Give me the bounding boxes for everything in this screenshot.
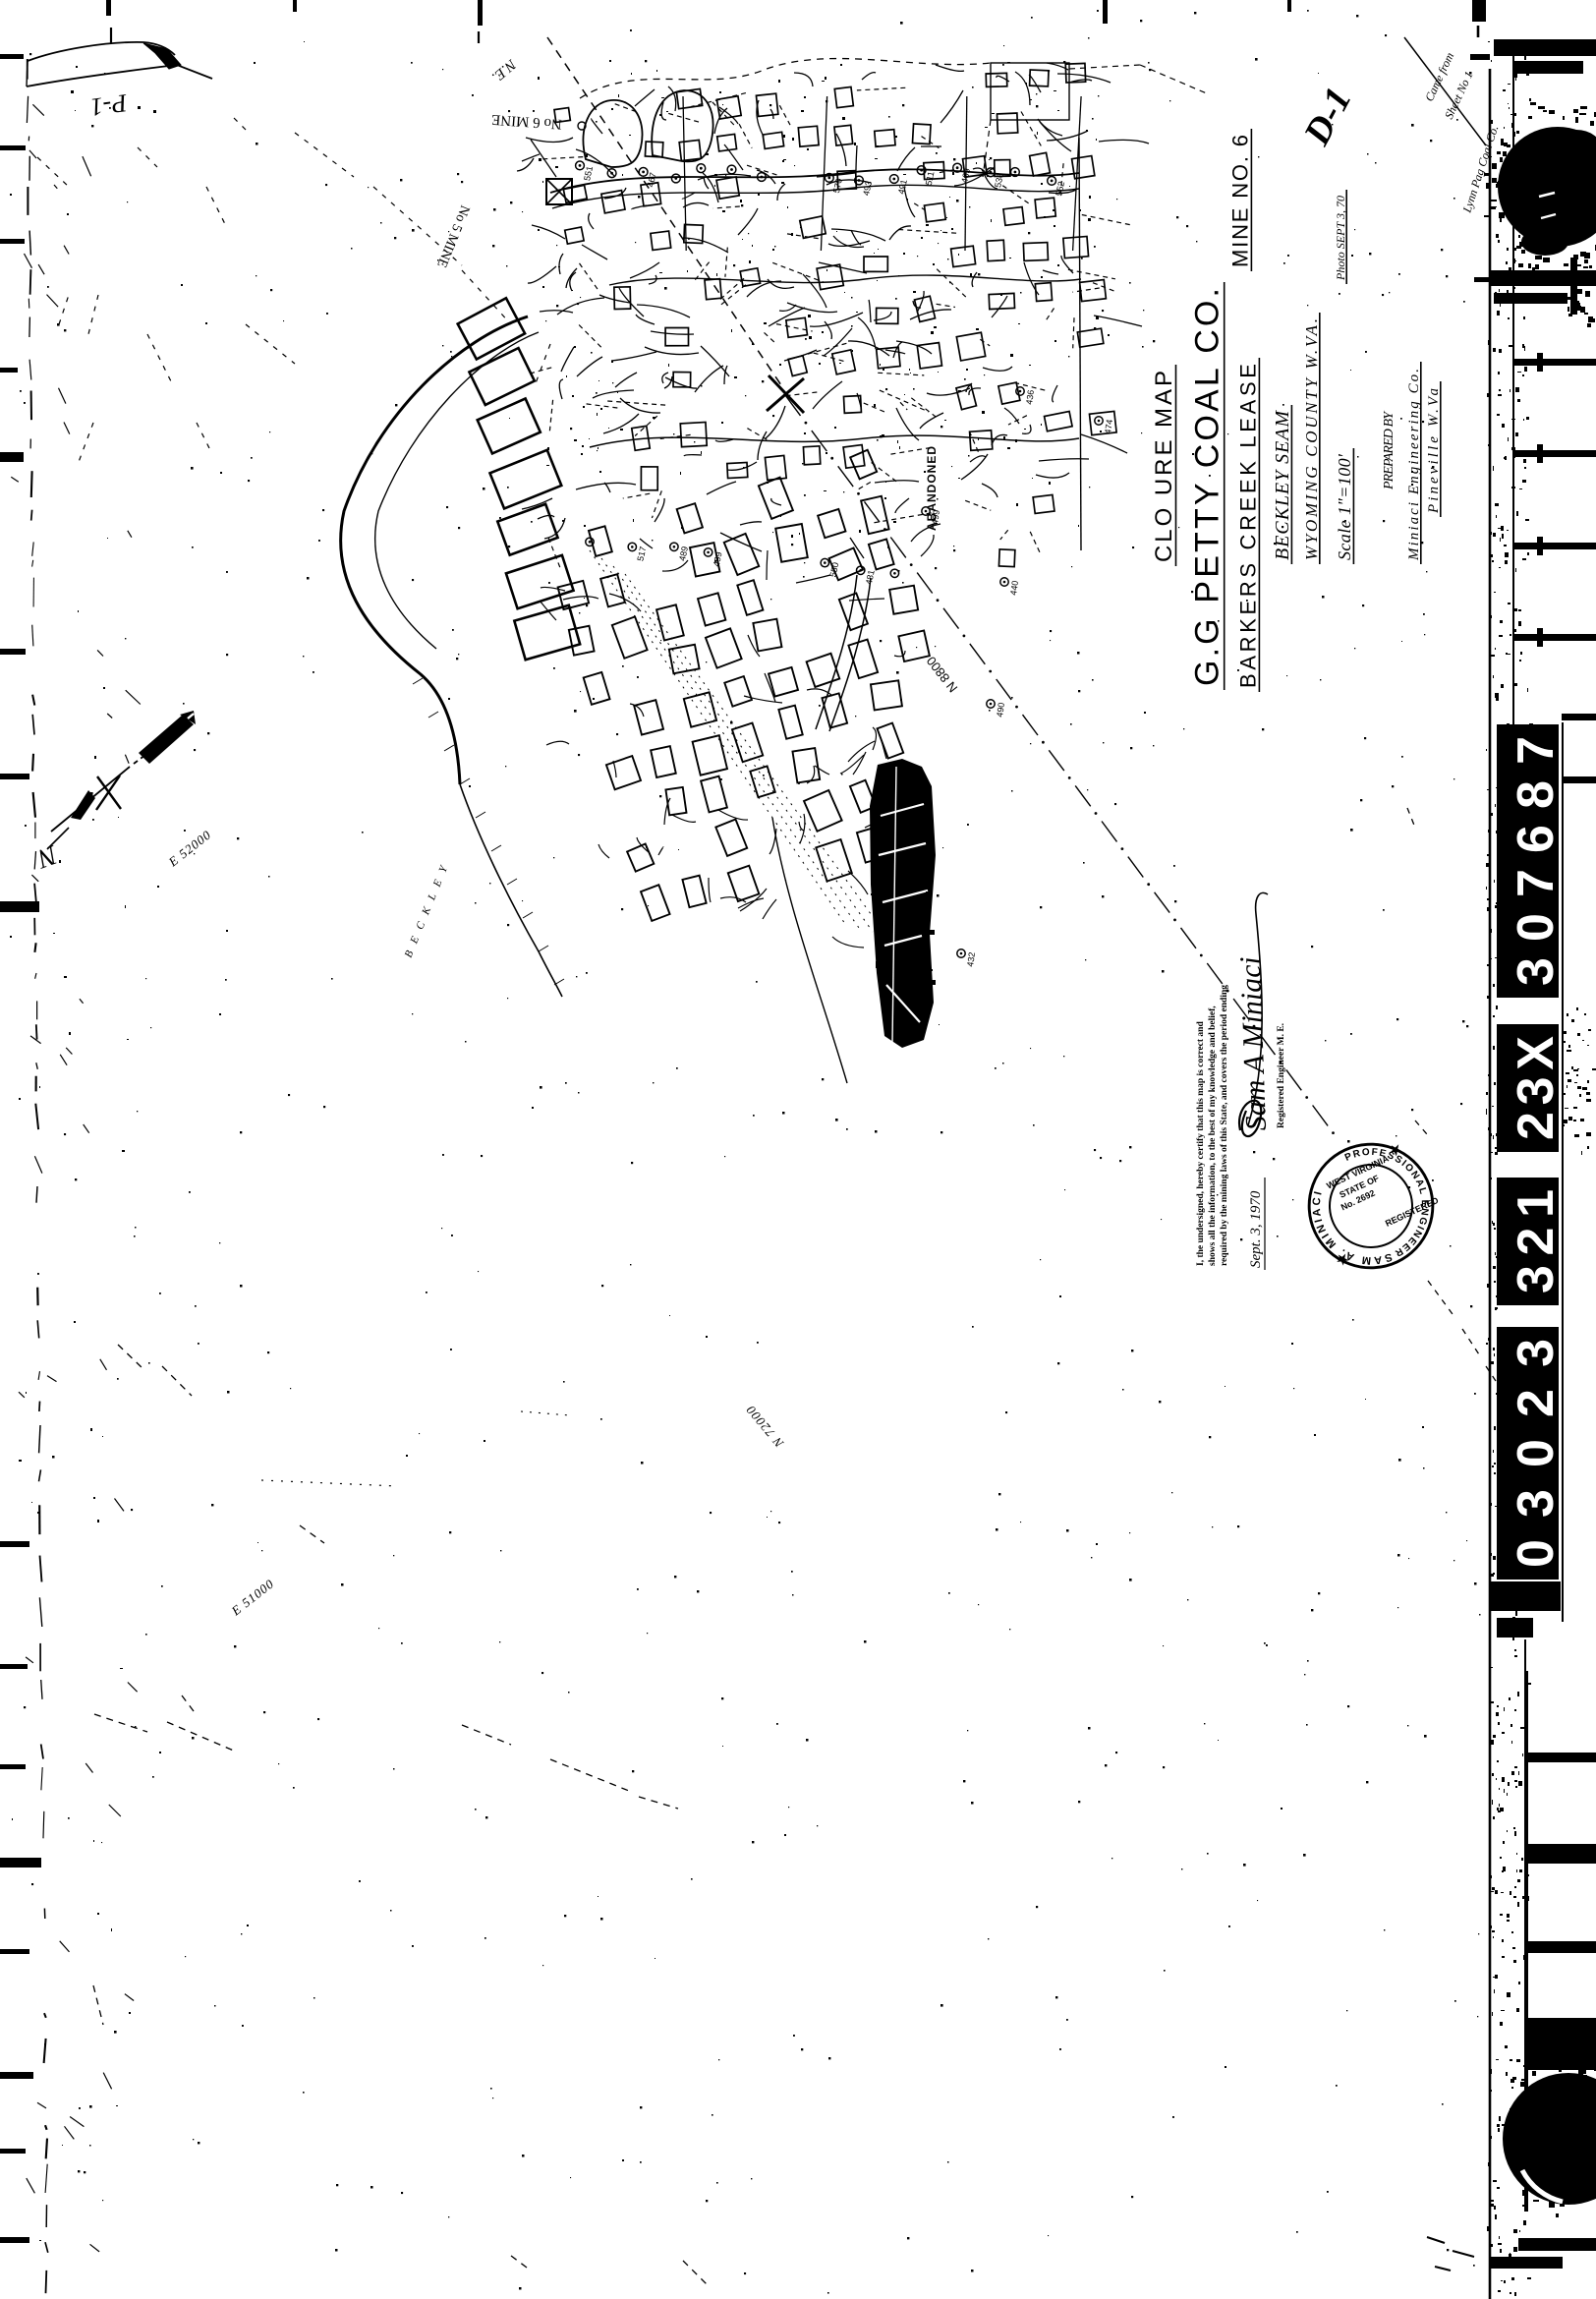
svg-text:required by the mining laws of: required by the mining laws of this Stat…	[1220, 985, 1229, 1266]
svg-text:432: 432	[965, 951, 977, 967]
svg-text:Miniaci Engineering Co.: Miniaci Engineering Co.	[1406, 368, 1422, 561]
svg-text:BARKERS CREEK LEASE: BARKERS CREEK LEASE	[1236, 364, 1261, 688]
svg-text:P-1: P-1	[88, 88, 130, 122]
svg-text:I, the undersigned, hereby cer: I, the undersigned, hereby certify that …	[1196, 1021, 1206, 1266]
svg-text:PREPARED BY: PREPARED BY	[1382, 410, 1396, 490]
svg-text:G.G PETTY COAL CO.: G.G PETTY COAL CO.	[1189, 288, 1226, 686]
svg-text:Registered Engineer M. E.: Registered Engineer M. E.	[1277, 1023, 1286, 1128]
svg-text:440: 440	[1008, 580, 1020, 596]
svg-text:436: 436	[1024, 389, 1036, 405]
svg-text:321: 321	[1508, 1189, 1565, 1293]
svg-text:shows all the information, to: shows all the information, to the best o…	[1208, 1006, 1218, 1266]
svg-text:23X: 23X	[1508, 1036, 1565, 1140]
svg-text:MINE NO. 6: MINE NO. 6	[1228, 135, 1253, 267]
svg-text:WYOMING COUNTY W.VA.: WYOMING COUNTY W.VA.	[1302, 318, 1321, 560]
svg-text:BECKLEY SEAM: BECKLEY SEAM	[1272, 410, 1293, 560]
svg-text:ABANDONED: ABANDONED	[925, 445, 939, 531]
svg-text:CLO URE MAP: CLO URE MAP	[1151, 371, 1177, 562]
svg-text:Scale 1″=100′: Scale 1″=100′	[1335, 453, 1354, 560]
svg-text:490: 490	[995, 702, 1006, 718]
svg-text:Photo SEPT 3, 70: Photo SEPT 3, 70	[1334, 196, 1347, 281]
svg-text:Sept. 3, 1970: Sept. 3, 1970	[1248, 1190, 1264, 1268]
